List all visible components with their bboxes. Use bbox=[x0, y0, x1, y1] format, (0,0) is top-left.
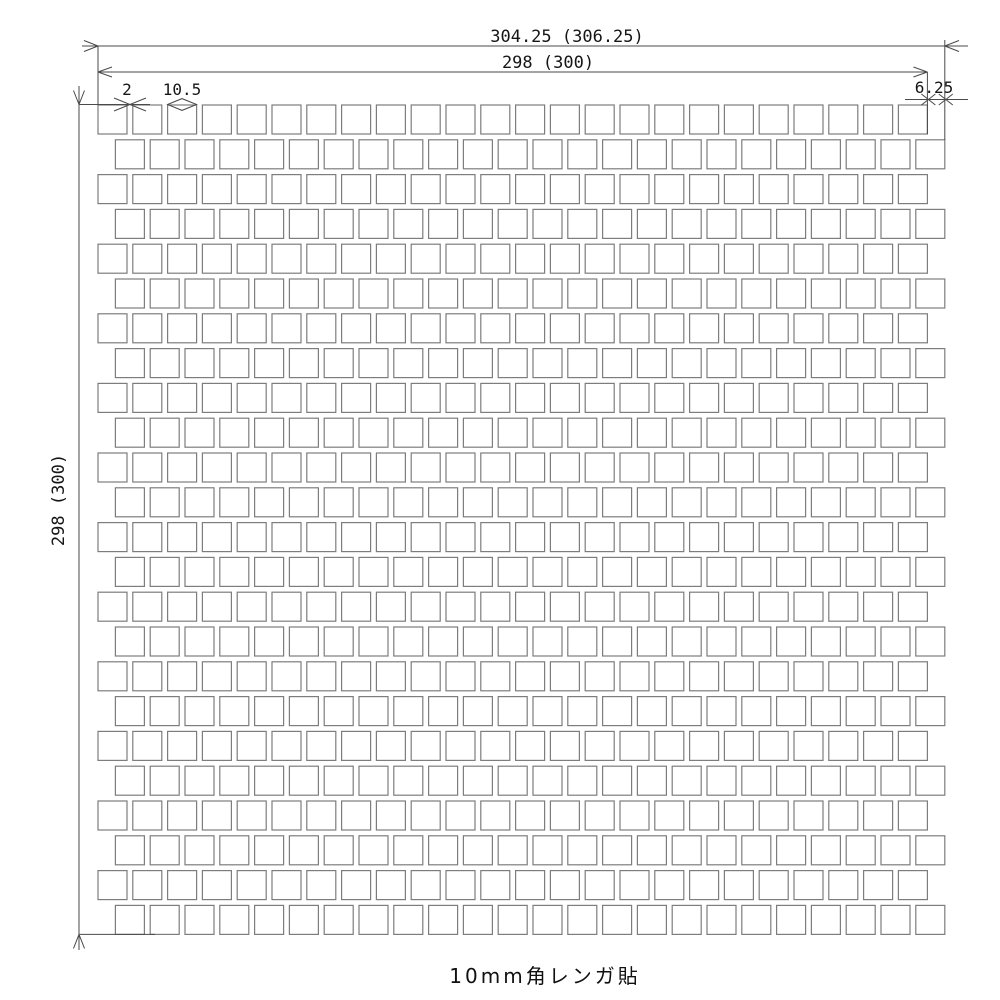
tile bbox=[620, 731, 649, 760]
tile bbox=[898, 523, 927, 552]
tile bbox=[220, 905, 249, 934]
tile bbox=[777, 209, 806, 238]
tile bbox=[411, 592, 440, 621]
tile bbox=[324, 697, 353, 726]
tile bbox=[777, 697, 806, 726]
tile bbox=[255, 349, 284, 378]
tile bbox=[498, 905, 527, 934]
tile bbox=[811, 905, 840, 934]
tile bbox=[603, 349, 632, 378]
tile bbox=[133, 383, 162, 412]
tile bbox=[516, 731, 545, 760]
tile bbox=[342, 244, 371, 273]
tile bbox=[707, 140, 736, 169]
tile bbox=[898, 105, 927, 134]
tile bbox=[637, 209, 666, 238]
tile bbox=[342, 731, 371, 760]
tile bbox=[637, 349, 666, 378]
tile bbox=[307, 453, 336, 482]
tile bbox=[794, 731, 823, 760]
tile bbox=[829, 453, 858, 482]
tile bbox=[429, 766, 458, 795]
tile bbox=[759, 314, 788, 343]
tile bbox=[359, 209, 388, 238]
tile bbox=[446, 871, 475, 900]
tile bbox=[376, 105, 405, 134]
tile bbox=[690, 314, 719, 343]
tile bbox=[272, 383, 301, 412]
tile bbox=[98, 592, 127, 621]
tile bbox=[237, 314, 266, 343]
tile bbox=[742, 627, 771, 656]
tile bbox=[481, 871, 510, 900]
tile bbox=[289, 557, 318, 586]
tile bbox=[777, 905, 806, 934]
tile bbox=[376, 871, 405, 900]
tile bbox=[429, 836, 458, 865]
tile bbox=[220, 488, 249, 517]
tile bbox=[115, 209, 144, 238]
tile bbox=[533, 279, 562, 308]
tile bbox=[272, 871, 301, 900]
tile bbox=[533, 140, 562, 169]
tile bbox=[655, 801, 684, 830]
tile bbox=[864, 523, 893, 552]
tile bbox=[394, 349, 423, 378]
tile bbox=[463, 766, 492, 795]
tile bbox=[150, 697, 179, 726]
tile bbox=[272, 244, 301, 273]
tile bbox=[881, 905, 910, 934]
tile bbox=[394, 140, 423, 169]
tile bbox=[672, 627, 701, 656]
tile bbox=[463, 557, 492, 586]
tile bbox=[533, 836, 562, 865]
tile bbox=[724, 592, 753, 621]
tile bbox=[516, 662, 545, 691]
tile bbox=[202, 592, 231, 621]
dim-row-offset-label: 6.25 bbox=[915, 78, 954, 97]
tile bbox=[568, 905, 597, 934]
tile bbox=[359, 488, 388, 517]
tile bbox=[829, 244, 858, 273]
tile bbox=[603, 627, 632, 656]
tile bbox=[115, 905, 144, 934]
tile bbox=[742, 766, 771, 795]
tile bbox=[255, 488, 284, 517]
tile bbox=[411, 523, 440, 552]
tile bbox=[864, 662, 893, 691]
tile bbox=[429, 905, 458, 934]
tile bbox=[881, 279, 910, 308]
tile bbox=[724, 105, 753, 134]
tile bbox=[429, 627, 458, 656]
tile bbox=[342, 383, 371, 412]
tile bbox=[811, 488, 840, 517]
tile bbox=[916, 140, 945, 169]
tile bbox=[655, 175, 684, 204]
tile bbox=[655, 523, 684, 552]
tile bbox=[324, 557, 353, 586]
tile bbox=[916, 349, 945, 378]
tile bbox=[376, 453, 405, 482]
tile bbox=[411, 453, 440, 482]
tile bbox=[881, 209, 910, 238]
tile bbox=[446, 453, 475, 482]
tile bbox=[498, 140, 527, 169]
tile bbox=[620, 523, 649, 552]
tile bbox=[185, 418, 214, 447]
tile bbox=[481, 314, 510, 343]
tile bbox=[724, 801, 753, 830]
tile bbox=[516, 592, 545, 621]
tile bbox=[916, 418, 945, 447]
tile bbox=[185, 905, 214, 934]
tile bbox=[759, 105, 788, 134]
tile bbox=[881, 557, 910, 586]
tile bbox=[324, 488, 353, 517]
tile bbox=[98, 523, 127, 552]
tile bbox=[324, 766, 353, 795]
tile bbox=[724, 175, 753, 204]
tile bbox=[133, 523, 162, 552]
tile bbox=[690, 731, 719, 760]
tile bbox=[724, 453, 753, 482]
tile bbox=[237, 871, 266, 900]
tile bbox=[98, 801, 127, 830]
tile bbox=[98, 383, 127, 412]
tile bbox=[637, 488, 666, 517]
tile bbox=[516, 105, 545, 134]
tile bbox=[168, 523, 197, 552]
tile bbox=[168, 244, 197, 273]
tile bbox=[881, 488, 910, 517]
tile bbox=[359, 836, 388, 865]
tile bbox=[429, 140, 458, 169]
tile bbox=[533, 766, 562, 795]
tile bbox=[516, 314, 545, 343]
tile bbox=[672, 209, 701, 238]
tile bbox=[289, 209, 318, 238]
tile bbox=[864, 592, 893, 621]
tile bbox=[115, 766, 144, 795]
tile bbox=[202, 244, 231, 273]
tile bbox=[777, 557, 806, 586]
tile bbox=[150, 209, 179, 238]
tile bbox=[359, 279, 388, 308]
tile bbox=[324, 418, 353, 447]
tile bbox=[255, 697, 284, 726]
tile bbox=[707, 279, 736, 308]
tile bbox=[637, 418, 666, 447]
tile bbox=[342, 453, 371, 482]
tile bbox=[585, 871, 614, 900]
tile bbox=[289, 697, 318, 726]
tile bbox=[550, 453, 579, 482]
tile bbox=[289, 279, 318, 308]
tile bbox=[777, 279, 806, 308]
tile bbox=[846, 557, 875, 586]
tile bbox=[359, 766, 388, 795]
tile bbox=[672, 905, 701, 934]
tile bbox=[446, 175, 475, 204]
tile bbox=[168, 314, 197, 343]
tile bbox=[690, 871, 719, 900]
tile bbox=[115, 418, 144, 447]
tile bbox=[220, 627, 249, 656]
tile bbox=[550, 871, 579, 900]
tile bbox=[846, 627, 875, 656]
tile bbox=[568, 349, 597, 378]
tile bbox=[690, 662, 719, 691]
tile bbox=[533, 349, 562, 378]
tile bbox=[777, 627, 806, 656]
tile bbox=[603, 557, 632, 586]
tile bbox=[359, 418, 388, 447]
tile bbox=[550, 523, 579, 552]
tile bbox=[759, 523, 788, 552]
tile bbox=[237, 175, 266, 204]
tile bbox=[829, 801, 858, 830]
tile bbox=[324, 836, 353, 865]
tile bbox=[202, 731, 231, 760]
tile bbox=[759, 801, 788, 830]
tile bbox=[794, 314, 823, 343]
tile bbox=[481, 383, 510, 412]
tile bbox=[324, 905, 353, 934]
tile bbox=[185, 836, 214, 865]
tile bbox=[655, 383, 684, 412]
tile bbox=[550, 383, 579, 412]
tile bbox=[637, 836, 666, 865]
tile bbox=[620, 244, 649, 273]
tile bbox=[829, 105, 858, 134]
tile bbox=[498, 697, 527, 726]
tile bbox=[811, 697, 840, 726]
tile bbox=[481, 523, 510, 552]
tile bbox=[846, 209, 875, 238]
tile bbox=[237, 523, 266, 552]
tile bbox=[133, 453, 162, 482]
tile bbox=[603, 488, 632, 517]
tile bbox=[255, 209, 284, 238]
tile bbox=[690, 383, 719, 412]
tile bbox=[498, 418, 527, 447]
tile bbox=[394, 766, 423, 795]
tile bbox=[237, 662, 266, 691]
tile bbox=[446, 523, 475, 552]
tile bbox=[429, 697, 458, 726]
tile bbox=[185, 209, 214, 238]
tile bbox=[133, 105, 162, 134]
tile bbox=[463, 836, 492, 865]
tile bbox=[742, 279, 771, 308]
tile bbox=[272, 314, 301, 343]
tile bbox=[742, 836, 771, 865]
tile bbox=[829, 592, 858, 621]
tile bbox=[220, 557, 249, 586]
tile bbox=[533, 418, 562, 447]
tile bbox=[446, 662, 475, 691]
tile bbox=[672, 349, 701, 378]
tile bbox=[620, 453, 649, 482]
tile bbox=[568, 557, 597, 586]
tile bbox=[185, 488, 214, 517]
tile bbox=[881, 418, 910, 447]
tile bbox=[133, 801, 162, 830]
tile bbox=[150, 766, 179, 795]
tile bbox=[168, 105, 197, 134]
tile bbox=[655, 105, 684, 134]
tile bbox=[481, 592, 510, 621]
tile bbox=[376, 244, 405, 273]
tile bbox=[585, 592, 614, 621]
tile bbox=[272, 801, 301, 830]
tile bbox=[724, 731, 753, 760]
tile bbox=[150, 488, 179, 517]
tile bbox=[133, 314, 162, 343]
tile bbox=[481, 175, 510, 204]
tile bbox=[550, 175, 579, 204]
tile bbox=[916, 279, 945, 308]
tile bbox=[498, 279, 527, 308]
tile bbox=[811, 418, 840, 447]
tile bbox=[550, 592, 579, 621]
tile bbox=[829, 383, 858, 412]
tile bbox=[846, 697, 875, 726]
tile bbox=[777, 488, 806, 517]
tile bbox=[655, 592, 684, 621]
tile bbox=[342, 662, 371, 691]
tile bbox=[637, 766, 666, 795]
tile bbox=[533, 627, 562, 656]
tile bbox=[394, 836, 423, 865]
tile bbox=[376, 523, 405, 552]
tile bbox=[289, 349, 318, 378]
tile bbox=[898, 871, 927, 900]
tile bbox=[376, 801, 405, 830]
tile bbox=[759, 871, 788, 900]
tile bbox=[811, 557, 840, 586]
tile bbox=[829, 314, 858, 343]
tile bbox=[759, 244, 788, 273]
tile bbox=[220, 766, 249, 795]
dim-tiled-width-label: 298 (300) bbox=[502, 53, 594, 73]
tile bbox=[916, 905, 945, 934]
tile bbox=[898, 662, 927, 691]
tile bbox=[411, 314, 440, 343]
tile bbox=[707, 209, 736, 238]
tile bbox=[794, 523, 823, 552]
tile bbox=[98, 244, 127, 273]
tile bbox=[655, 453, 684, 482]
tile bbox=[881, 697, 910, 726]
tile bbox=[881, 349, 910, 378]
tile bbox=[376, 175, 405, 204]
tile bbox=[481, 662, 510, 691]
tile bbox=[707, 836, 736, 865]
tile bbox=[603, 836, 632, 865]
tile bbox=[376, 662, 405, 691]
tile bbox=[446, 731, 475, 760]
tile bbox=[446, 383, 475, 412]
tile bbox=[881, 627, 910, 656]
tile bbox=[463, 905, 492, 934]
tile bbox=[98, 453, 127, 482]
tile bbox=[585, 453, 614, 482]
tile bbox=[411, 871, 440, 900]
tile bbox=[115, 627, 144, 656]
tile bbox=[411, 662, 440, 691]
tile bbox=[672, 279, 701, 308]
tile bbox=[307, 244, 336, 273]
tile bbox=[272, 592, 301, 621]
tile bbox=[533, 488, 562, 517]
tile bbox=[777, 418, 806, 447]
tile bbox=[742, 349, 771, 378]
tile bbox=[811, 209, 840, 238]
tile bbox=[150, 905, 179, 934]
tile bbox=[777, 766, 806, 795]
tile bbox=[429, 418, 458, 447]
tile bbox=[359, 349, 388, 378]
tile bbox=[342, 314, 371, 343]
tile bbox=[759, 731, 788, 760]
tile bbox=[115, 140, 144, 169]
tile bbox=[168, 453, 197, 482]
tile bbox=[916, 627, 945, 656]
tile bbox=[568, 766, 597, 795]
tile bbox=[185, 697, 214, 726]
tile bbox=[359, 557, 388, 586]
tile bbox=[307, 731, 336, 760]
tile bbox=[603, 697, 632, 726]
tile bbox=[846, 836, 875, 865]
tile bbox=[289, 766, 318, 795]
tile bbox=[376, 383, 405, 412]
tile bbox=[655, 662, 684, 691]
dim-tile-pitch-label: 10.5 bbox=[163, 80, 202, 99]
tile bbox=[742, 905, 771, 934]
tile bbox=[794, 453, 823, 482]
tile bbox=[411, 801, 440, 830]
tile bbox=[637, 140, 666, 169]
tile bbox=[255, 627, 284, 656]
tile bbox=[272, 105, 301, 134]
tile bbox=[359, 905, 388, 934]
tile bbox=[411, 175, 440, 204]
tile bbox=[829, 662, 858, 691]
tile bbox=[620, 105, 649, 134]
tile bbox=[429, 209, 458, 238]
tile bbox=[603, 905, 632, 934]
tile bbox=[463, 140, 492, 169]
tile bbox=[115, 557, 144, 586]
cad-drawing-page: 304.25 (306.25) 298 (300) 6.25 2 10.5 bbox=[0, 0, 1000, 1000]
tile bbox=[463, 697, 492, 726]
tile bbox=[707, 766, 736, 795]
tile bbox=[202, 314, 231, 343]
tile bbox=[202, 383, 231, 412]
drawing-caption: 10mm角レンガ貼 bbox=[449, 964, 640, 988]
tile bbox=[759, 592, 788, 621]
tile bbox=[568, 140, 597, 169]
tile bbox=[220, 279, 249, 308]
tile bbox=[255, 418, 284, 447]
tile bbox=[916, 488, 945, 517]
tile bbox=[133, 662, 162, 691]
tile bbox=[637, 279, 666, 308]
